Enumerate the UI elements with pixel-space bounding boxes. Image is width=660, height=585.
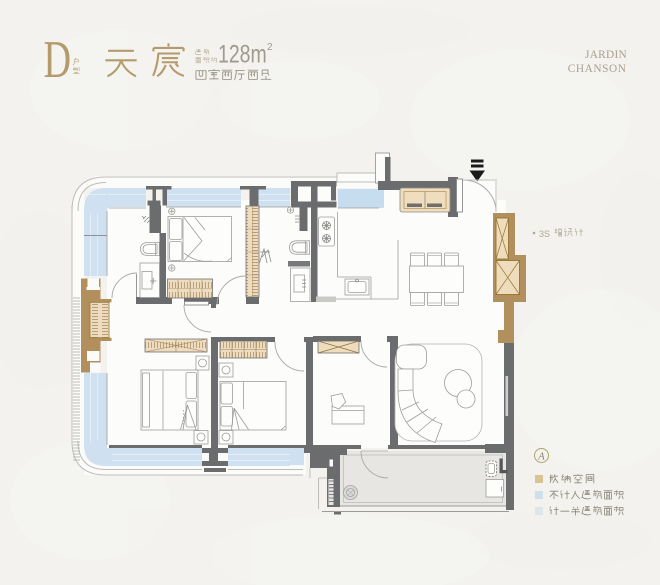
svg-text:D: D (44, 30, 72, 89)
svg-text:2: 2 (267, 42, 273, 53)
svg-text:A: A (537, 452, 545, 463)
svg-text:CHANSON: CHANSON (568, 63, 627, 75)
svg-text:3S: 3S (539, 229, 550, 239)
svg-text:128m: 128m (218, 40, 267, 68)
svg-text:JARDIN: JARDIN (585, 49, 627, 61)
